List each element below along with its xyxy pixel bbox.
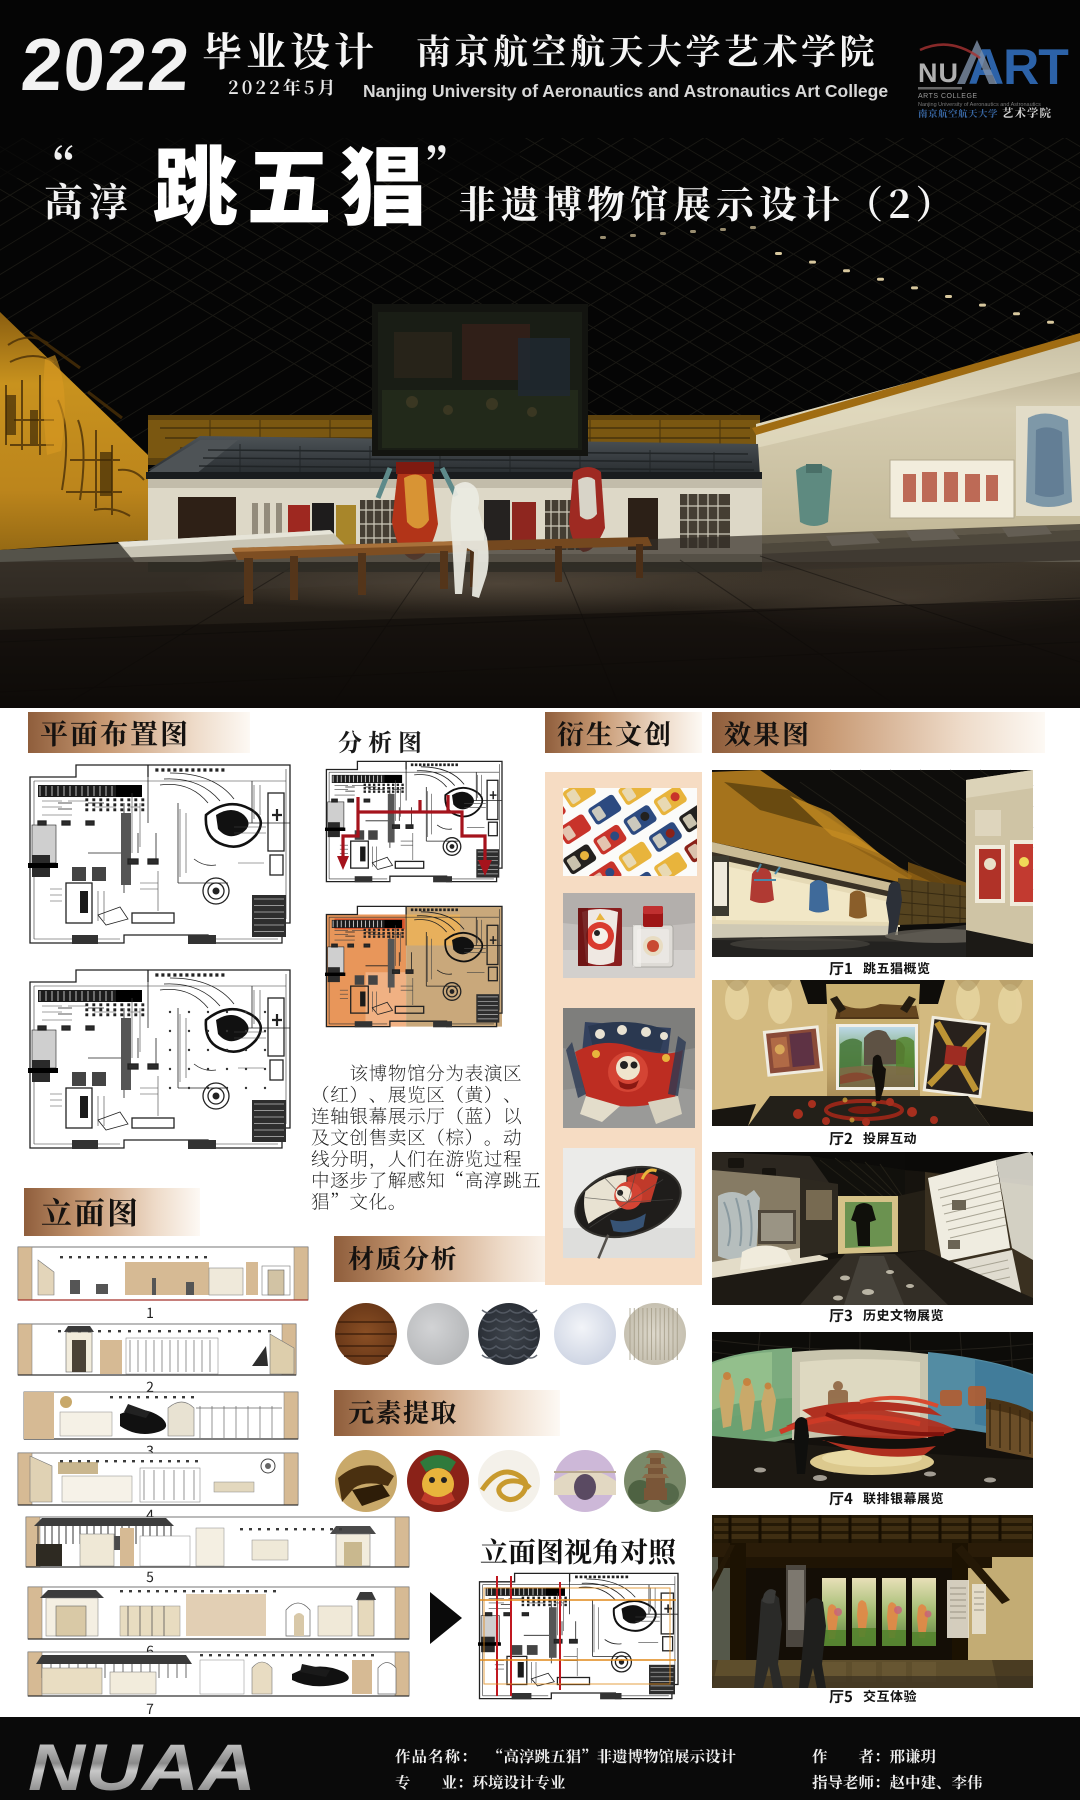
svg-text:ARTS COLLEGE: ARTS COLLEGE: [918, 93, 978, 100]
svg-text:NU: NU: [918, 58, 959, 88]
svg-text:NUAA: NUAA: [28, 1730, 256, 1800]
svg-text:Nanjing University of Aeron: Nanjing University of Aeronautics and As…: [363, 81, 888, 101]
svg-text:2022: 2022: [19, 23, 193, 106]
svg-text:Nanjing University of Aeronaut: Nanjing University of Aeronautics and As…: [918, 102, 1041, 108]
